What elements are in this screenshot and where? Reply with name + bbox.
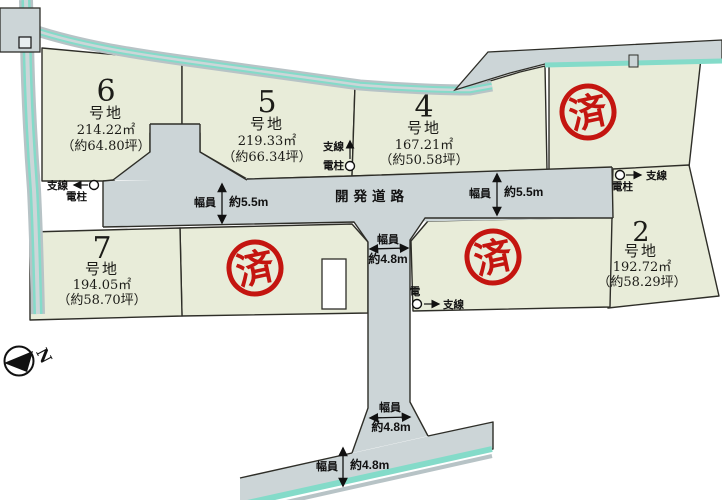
pole-label: 電柱 bbox=[612, 180, 633, 193]
plot-5-suffix: 号地 bbox=[250, 115, 284, 133]
site-plan-svg: 開発道路 6 号地 214.22㎡ （約64.80坪） 5 号地 219.33㎡… bbox=[0, 0, 722, 500]
width-label: 幅員 bbox=[377, 232, 399, 246]
plot-7-tsubo: （約58.70坪） bbox=[57, 293, 146, 308]
plot-7-area: 194.05㎡ bbox=[73, 278, 132, 293]
width-value: 約4.8m bbox=[368, 251, 407, 266]
site-plan-map: 開発道路 6 号地 214.22㎡ （約64.80坪） 5 号地 219.33㎡… bbox=[0, 0, 722, 500]
plot-5-area: 219.33㎡ bbox=[238, 134, 297, 149]
plot-2-suffix: 号地 bbox=[624, 242, 658, 260]
width-label: 幅員 bbox=[469, 186, 491, 200]
width-value: 約4.8m bbox=[350, 457, 389, 472]
plot-4-area: 167.21㎡ bbox=[395, 138, 454, 153]
bridge bbox=[19, 37, 31, 48]
utility-pole-marker bbox=[413, 300, 422, 309]
utility-pole-marker bbox=[90, 181, 99, 190]
plot-2-area: 192.72㎡ bbox=[613, 260, 672, 275]
plot-6-tsubo: （約64.80坪） bbox=[61, 139, 150, 154]
plot-4-suffix: 号地 bbox=[407, 119, 441, 137]
width-value: 約4.8m bbox=[371, 419, 410, 434]
guy-wire-label: 支線 bbox=[442, 298, 464, 311]
guy-wire-label: 支線 bbox=[645, 169, 667, 182]
plot-6-area: 214.22㎡ bbox=[77, 123, 136, 138]
width-value: 約5.5m bbox=[504, 184, 543, 199]
plot-5-tsubo: （約66.34坪） bbox=[222, 150, 311, 165]
utility-pole-marker bbox=[616, 171, 625, 180]
plot-2-tsubo: （約58.29坪） bbox=[597, 275, 686, 290]
compass-north-label: N bbox=[32, 345, 56, 367]
plot-4-tsubo: （約50.58坪） bbox=[379, 153, 468, 168]
plot-6-suffix: 号地 bbox=[89, 104, 123, 122]
pole-label: 電柱 bbox=[323, 159, 344, 172]
utility-west: 支線 電柱 bbox=[46, 179, 99, 203]
guy-wire-label: 支線 bbox=[322, 140, 344, 153]
width-value: 約5.5m bbox=[229, 194, 268, 209]
pole-label: 電柱 bbox=[66, 190, 87, 203]
plot-7-suffix: 号地 bbox=[85, 260, 119, 278]
width-label: 幅員 bbox=[316, 459, 338, 473]
width-label: 幅員 bbox=[379, 400, 401, 414]
width-label: 幅員 bbox=[194, 195, 216, 209]
excluded-lot bbox=[322, 259, 346, 309]
pole-label: 電 bbox=[410, 286, 421, 298]
road-name-label: 開発道路 bbox=[335, 188, 409, 204]
north-compass: N bbox=[4, 345, 56, 376]
stream-gate bbox=[629, 55, 638, 67]
utility-pole-marker bbox=[346, 162, 355, 171]
